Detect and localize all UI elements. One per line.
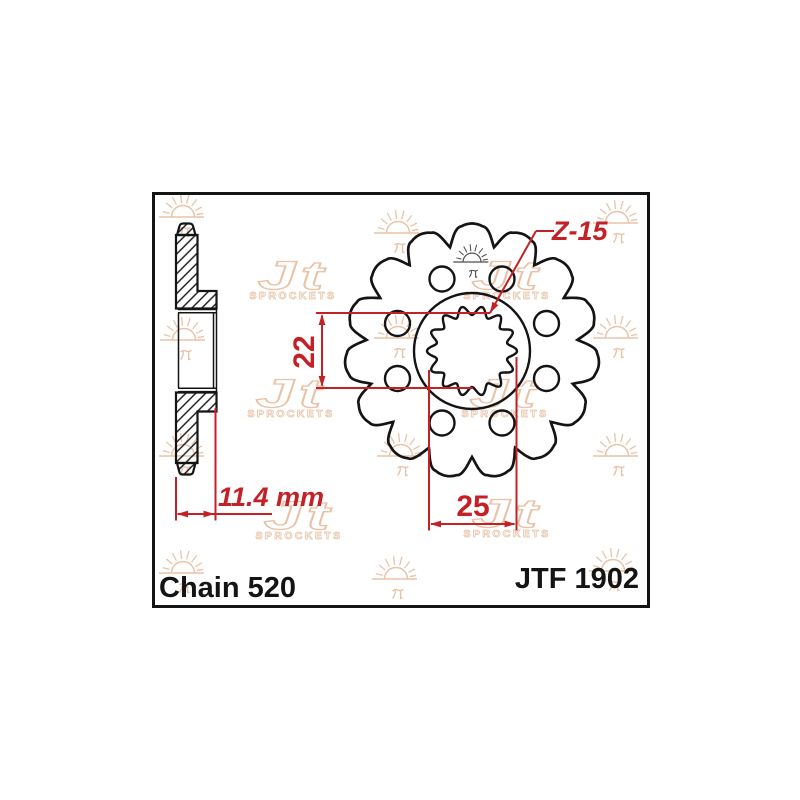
jt-sprockets-logo-watermark: JtSPROCKETS	[250, 253, 337, 302]
dimension-label-bore-height: 22	[287, 329, 323, 375]
sprockets-wordmark: SPROCKETS	[464, 290, 551, 302]
teeth-count-label: Z-15	[552, 216, 608, 247]
sprockets-wordmark: SPROCKETS	[248, 408, 335, 420]
part-number-label: JTF 1902	[515, 563, 639, 596]
sprockets-wordmark: SPROCKETS	[256, 530, 343, 542]
sprockets-wordmark: SPROCKETS	[250, 290, 337, 302]
sprockets-wordmark: SPROCKETS	[464, 528, 551, 540]
product-drawing-canvas: JtSPROCKETSJtSPROCKETSJtSPROCKETSJtSPROC…	[0, 0, 800, 800]
side-view-bottom-tooth	[177, 463, 196, 475]
dimension-label-bore-width: 25	[451, 490, 495, 524]
background	[0, 0, 800, 800]
side-view-top-tooth	[177, 224, 196, 236]
jt-sprockets-logo-watermark: JtSPROCKETS	[462, 371, 549, 420]
sprocket-technical-diagram: JtSPROCKETSJtSPROCKETSJtSPROCKETSJtSPROC…	[0, 0, 800, 800]
dimension-label-overall-width: 11.4 mm	[218, 482, 324, 513]
chain-size-label: Chain 520	[159, 572, 296, 605]
